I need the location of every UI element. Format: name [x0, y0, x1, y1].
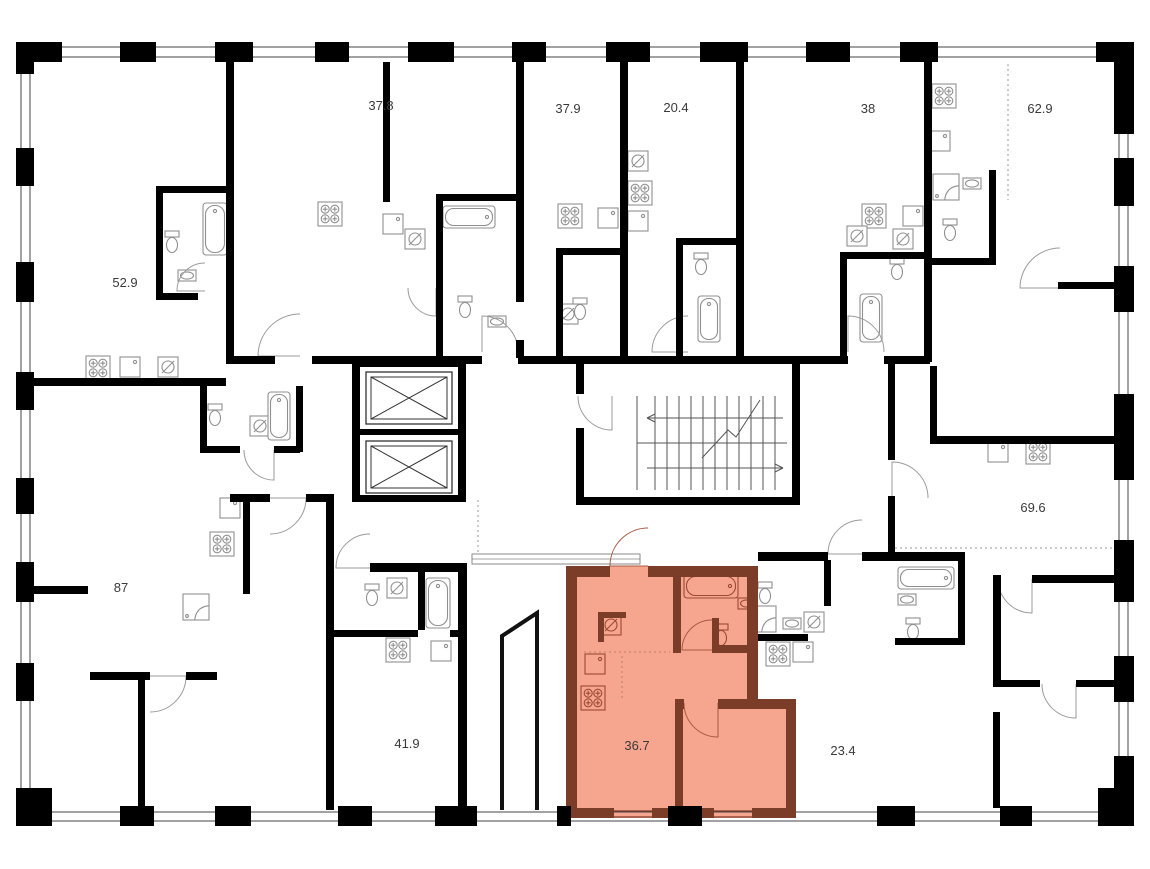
elevator-icon [366, 372, 452, 424]
unit-area-label[interactable]: 41.9 [394, 736, 419, 751]
stove-icon [862, 204, 886, 228]
door-arc-icon [1042, 684, 1076, 718]
sink-icon [988, 442, 1008, 462]
stairs-icon [637, 396, 787, 490]
stove-icon [932, 84, 956, 108]
toilet-icon [458, 296, 472, 318]
tub-icon [268, 392, 290, 440]
sink-icon [585, 654, 605, 674]
door-arc-icon [408, 288, 436, 316]
toilet-icon [890, 258, 904, 280]
stove-icon [86, 356, 110, 380]
tub-icon [698, 296, 720, 342]
sink-icon [793, 642, 813, 662]
door-arc-icon [578, 396, 612, 430]
stove-icon [210, 532, 234, 556]
toilet-icon [365, 584, 379, 606]
unit-area-label[interactable]: 37.9 [555, 101, 580, 116]
door-arc-icon [828, 520, 862, 554]
sink-icon [930, 131, 950, 151]
unit-area-label[interactable]: 36.7 [624, 738, 649, 753]
washer-icon [158, 357, 178, 377]
washer-icon [804, 612, 824, 632]
sink-icon [598, 208, 618, 228]
unit-area-label[interactable]: 52.9 [112, 275, 137, 290]
door-arc-icon [270, 498, 306, 534]
tub-icon [684, 574, 738, 598]
door-arc-icon [1020, 248, 1060, 288]
sink-icon [628, 211, 648, 231]
washer-icon [893, 229, 913, 249]
unit-area-label[interactable]: 62.9 [1027, 101, 1052, 116]
basin-icon [963, 178, 981, 189]
washer-icon [250, 416, 270, 436]
washer-icon [628, 151, 648, 171]
tub-icon [898, 567, 954, 589]
tub-icon [443, 206, 495, 228]
sink-icon [120, 357, 140, 377]
toilet-icon [906, 618, 920, 640]
tub-icon [203, 203, 227, 255]
toilet-icon [165, 231, 179, 253]
door-arc-icon [150, 676, 186, 712]
elevator-icon [366, 441, 452, 493]
sink-icon [431, 641, 451, 661]
toilet-icon [943, 219, 957, 241]
door-arc-icon [336, 534, 370, 568]
unit-area-label[interactable]: 37.8 [368, 98, 393, 113]
unit-area-label[interactable]: 87 [114, 580, 128, 595]
entrance-ramp-icon [502, 613, 537, 810]
sink-icon [383, 214, 403, 234]
washer-icon [405, 229, 425, 249]
unit-area-label[interactable]: 38 [861, 101, 875, 116]
shower-icon [183, 594, 209, 620]
stove-icon [628, 181, 652, 205]
basin-icon [898, 594, 916, 605]
unit-area-label[interactable]: 69.6 [1020, 500, 1045, 515]
unit-area-label[interactable]: 23.4 [830, 743, 855, 758]
washer-icon [847, 226, 867, 246]
shower-icon [933, 174, 959, 200]
sink-icon [903, 206, 923, 226]
door-arc-icon [892, 462, 928, 498]
stove-icon [318, 202, 342, 226]
basin-icon [783, 618, 801, 629]
toilet-icon [208, 404, 222, 426]
door-arc-icon [244, 450, 274, 480]
tub-icon [860, 294, 882, 342]
toilet-icon [694, 253, 708, 275]
toilet-icon [573, 298, 587, 320]
floor-plan: 52.937.837.920.43862.98741.936.723.469.6 [0, 0, 1150, 869]
stove-icon [766, 642, 790, 666]
unit-area-label[interactable]: 20.4 [663, 100, 688, 115]
stove-icon [558, 204, 582, 228]
washer-icon [387, 578, 407, 598]
stove-icon [581, 686, 605, 710]
toilet-icon [758, 582, 772, 604]
tub-icon [426, 578, 450, 628]
door-arc-icon [998, 579, 1032, 613]
basin-icon [178, 270, 196, 281]
door-arc-icon [258, 314, 300, 356]
basin-icon [488, 316, 506, 327]
stove-icon [386, 638, 410, 662]
floor-plan-page: 52.937.837.920.43862.98741.936.723.469.6 [0, 0, 1150, 869]
